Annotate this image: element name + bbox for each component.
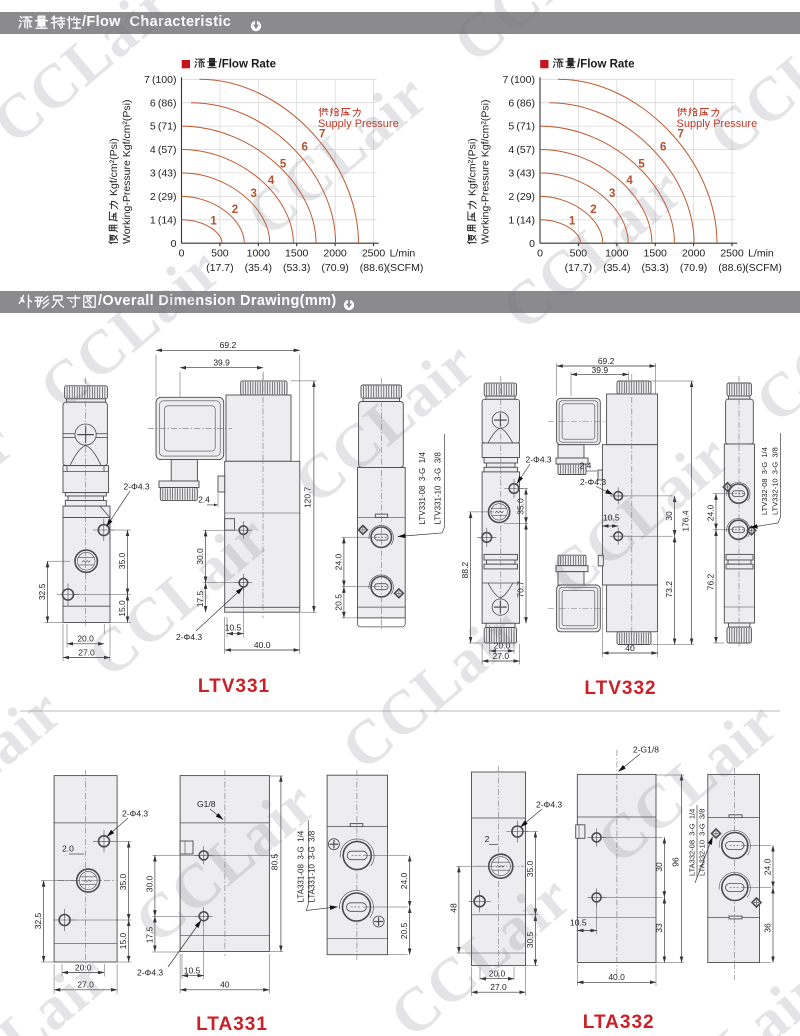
svg-text:96: 96 — [670, 857, 680, 867]
svg-text:27.0: 27.0 — [493, 651, 510, 661]
svg-text:20.0: 20.0 — [489, 969, 506, 979]
svg-text:LTV332-08 3-G 1/4: LTV332-08 3-G 1/4 — [760, 447, 769, 515]
svg-text:6: 6 — [301, 142, 307, 154]
svg-text:LTV332-10 3-G 3/8: LTV332-10 3-G 3/8 — [771, 447, 780, 515]
svg-text:LTA332-10 3-G 3/8: LTA332-10 3-G 3/8 — [698, 809, 707, 876]
svg-text:24.0: 24.0 — [399, 872, 409, 889]
svg-text:Working-Pressure Kgf/cm²(Psi): Working-Pressure Kgf/cm²(Psi) — [480, 100, 492, 245]
svg-text:/Flow Rate: /Flow Rate — [219, 58, 277, 70]
svg-text:LTV332: LTV332 — [584, 678, 656, 699]
svg-text:(88.6): (88.6) — [718, 262, 745, 274]
svg-text:20.0: 20.0 — [75, 962, 92, 972]
svg-text:L/min: L/min — [390, 248, 416, 260]
svg-text:2: 2 — [232, 204, 238, 216]
svg-text:0: 0 — [179, 248, 185, 260]
svg-text:27.0: 27.0 — [490, 982, 507, 992]
svg-text:176.4: 176.4 — [680, 510, 690, 532]
svg-text:80.5: 80.5 — [270, 853, 280, 870]
svg-text:120.7: 120.7 — [303, 486, 313, 508]
svg-text:1 (14): 1 (14) — [150, 214, 177, 226]
svg-text:LTA331: LTA331 — [196, 1014, 268, 1035]
svg-text:35.0: 35.0 — [117, 552, 127, 569]
svg-text:2-Φ4.3: 2-Φ4.3 — [124, 482, 150, 492]
svg-text:LTV331-08 3-G 1/4: LTV331-08 3-G 1/4 — [418, 452, 427, 525]
svg-text:6: 6 — [660, 142, 666, 154]
svg-text:4 (57): 4 (57) — [150, 144, 177, 156]
svg-text:4: 4 — [626, 175, 633, 187]
svg-text:G1/8: G1/8 — [197, 799, 216, 809]
svg-text:1: 1 — [569, 215, 576, 227]
svg-text:10.5: 10.5 — [225, 623, 242, 633]
svg-text:40.0: 40.0 — [608, 972, 625, 982]
svg-text:17.5: 17.5 — [144, 926, 154, 943]
svg-text:500: 500 — [570, 248, 588, 260]
svg-text:88.2: 88.2 — [460, 562, 470, 579]
svg-text:Supply Pressure: Supply Pressure — [318, 118, 399, 130]
svg-text:L/min: L/min — [748, 248, 774, 260]
svg-text:(53.3): (53.3) — [641, 262, 668, 274]
svg-text:76.2: 76.2 — [706, 573, 716, 590]
svg-text:40.0: 40.0 — [254, 640, 271, 650]
svg-text:70.7: 70.7 — [516, 581, 526, 598]
svg-text:2-Φ4.3: 2-Φ4.3 — [526, 455, 552, 465]
svg-text:5 (71): 5 (71) — [150, 121, 177, 133]
svg-text:15.0: 15.0 — [117, 600, 127, 617]
svg-text:15.0: 15.0 — [118, 932, 128, 949]
svg-text:(35.4): (35.4) — [245, 262, 272, 274]
svg-text:7 (100): 7 (100) — [503, 74, 535, 86]
svg-text:2: 2 — [485, 834, 490, 844]
svg-text:0: 0 — [171, 238, 177, 250]
svg-text:2.4: 2.4 — [580, 461, 592, 471]
svg-text:2000: 2000 — [682, 248, 706, 260]
svg-text:2 (29): 2 (29) — [508, 191, 535, 203]
svg-text:1 (14): 1 (14) — [508, 214, 535, 226]
svg-text:Working-Pressure Kgf/cm²(Psi): Working-Pressure Kgf/cm²(Psi) — [121, 100, 133, 245]
svg-text:32.5: 32.5 — [33, 912, 43, 929]
svg-text:39.9: 39.9 — [213, 358, 230, 368]
svg-text:3: 3 — [250, 188, 256, 200]
svg-text:0: 0 — [529, 238, 535, 250]
svg-text:36: 36 — [763, 923, 773, 933]
svg-text:33: 33 — [654, 923, 664, 933]
svg-text:1000: 1000 — [605, 248, 629, 260]
svg-text:73.2: 73.2 — [664, 581, 674, 598]
svg-text:2-G1/8: 2-G1/8 — [633, 745, 659, 755]
svg-text:Kgf/cm²(Psi): Kgf/cm²(Psi) — [108, 138, 120, 196]
svg-text:500: 500 — [211, 248, 229, 260]
svg-text:(88.6): (88.6) — [360, 262, 387, 274]
svg-text:4: 4 — [268, 175, 275, 187]
svg-text:1500: 1500 — [285, 248, 309, 260]
svg-text:69.2: 69.2 — [220, 340, 237, 350]
svg-text:(35.4): (35.4) — [603, 262, 630, 274]
svg-text:1500: 1500 — [644, 248, 668, 260]
svg-text:2-Φ4.3: 2-Φ4.3 — [176, 632, 202, 642]
svg-text:5: 5 — [638, 158, 645, 170]
svg-text:2500: 2500 — [720, 248, 744, 260]
svg-text:40: 40 — [625, 643, 635, 653]
svg-text:24.0: 24.0 — [706, 504, 716, 521]
svg-text:5 (71): 5 (71) — [508, 121, 535, 133]
svg-text:20.5: 20.5 — [399, 922, 409, 939]
svg-text:3 (43): 3 (43) — [508, 168, 535, 180]
svg-text:30.0: 30.0 — [144, 875, 154, 892]
svg-text:17.5: 17.5 — [195, 590, 205, 607]
svg-text:2-Φ4.3: 2-Φ4.3 — [137, 968, 163, 978]
svg-text:/Flow Rate: /Flow Rate — [577, 58, 635, 70]
svg-text:LTA332: LTA332 — [583, 1012, 655, 1033]
svg-text:2-Φ4.3: 2-Φ4.3 — [122, 809, 148, 819]
svg-text:30.5: 30.5 — [525, 931, 535, 948]
svg-text:(SCFM): (SCFM) — [745, 262, 782, 274]
svg-text:(17.7): (17.7) — [565, 262, 592, 274]
svg-text:2.0: 2.0 — [62, 844, 74, 854]
svg-text:(70.9): (70.9) — [680, 262, 707, 274]
svg-text:2500: 2500 — [362, 248, 386, 260]
svg-text:40: 40 — [220, 980, 230, 990]
svg-text:(53.3): (53.3) — [283, 262, 310, 274]
svg-text:2000: 2000 — [323, 248, 347, 260]
svg-text:7 (100): 7 (100) — [144, 74, 176, 86]
svg-text:1000: 1000 — [247, 248, 271, 260]
svg-text:2: 2 — [590, 204, 596, 216]
svg-text:2 (29): 2 (29) — [150, 191, 177, 203]
svg-text:20.0: 20.0 — [77, 634, 94, 644]
svg-text:LTA332-08 3-G 1/4: LTA332-08 3-G 1/4 — [688, 809, 697, 876]
svg-text:5: 5 — [280, 158, 287, 170]
svg-text:10.5: 10.5 — [570, 918, 587, 928]
svg-text:30: 30 — [654, 862, 664, 872]
svg-text:35.0: 35.0 — [525, 860, 535, 877]
svg-text:2.4: 2.4 — [198, 494, 210, 504]
svg-text:24.0: 24.0 — [333, 553, 343, 570]
svg-text:27.0: 27.0 — [77, 980, 94, 990]
svg-text:4 (57): 4 (57) — [508, 144, 535, 156]
svg-text:35.0: 35.0 — [118, 873, 128, 890]
svg-text:27.0: 27.0 — [78, 647, 95, 657]
svg-text:1: 1 — [210, 215, 217, 227]
svg-text:48: 48 — [448, 903, 458, 913]
svg-text:32.5: 32.5 — [37, 583, 47, 600]
svg-text:10.5: 10.5 — [603, 513, 620, 523]
svg-text:3 (43): 3 (43) — [150, 168, 177, 180]
svg-text:LTA331-08 3-G 1/4: LTA331-08 3-G 1/4 — [297, 830, 306, 902]
svg-text:20.5: 20.5 — [333, 594, 343, 611]
svg-text:(70.9): (70.9) — [321, 262, 348, 274]
svg-text:(17.7): (17.7) — [206, 262, 233, 274]
svg-text:7: 7 — [677, 129, 683, 141]
svg-text:10.5: 10.5 — [184, 965, 201, 975]
svg-text:2-Φ4.3: 2-Φ4.3 — [580, 477, 606, 487]
svg-text:3: 3 — [609, 188, 615, 200]
svg-text:35.0: 35.0 — [516, 498, 526, 515]
svg-text:20.0: 20.0 — [494, 641, 511, 651]
svg-text:LTV331-10 3-G 3/8: LTV331-10 3-G 3/8 — [434, 452, 443, 525]
svg-text:LTV331: LTV331 — [198, 676, 270, 697]
svg-text:Supply Pressure: Supply Pressure — [677, 118, 758, 130]
svg-text:0: 0 — [537, 248, 543, 260]
svg-text:2-Φ4.3: 2-Φ4.3 — [536, 800, 562, 810]
svg-text:30.0: 30.0 — [195, 548, 205, 565]
svg-text:6 (86): 6 (86) — [508, 97, 535, 109]
svg-text:Kgf/cm²(Psi): Kgf/cm²(Psi) — [467, 138, 479, 196]
svg-text:(SCFM): (SCFM) — [387, 262, 424, 274]
svg-text:39.9: 39.9 — [592, 365, 609, 375]
svg-text:24.0: 24.0 — [763, 858, 773, 875]
svg-text:LTA331-10 3-G 3/8: LTA331-10 3-G 3/8 — [308, 830, 317, 902]
svg-text:30: 30 — [664, 511, 674, 521]
svg-text:7: 7 — [319, 129, 325, 141]
svg-text:6 (86): 6 (86) — [150, 97, 177, 109]
